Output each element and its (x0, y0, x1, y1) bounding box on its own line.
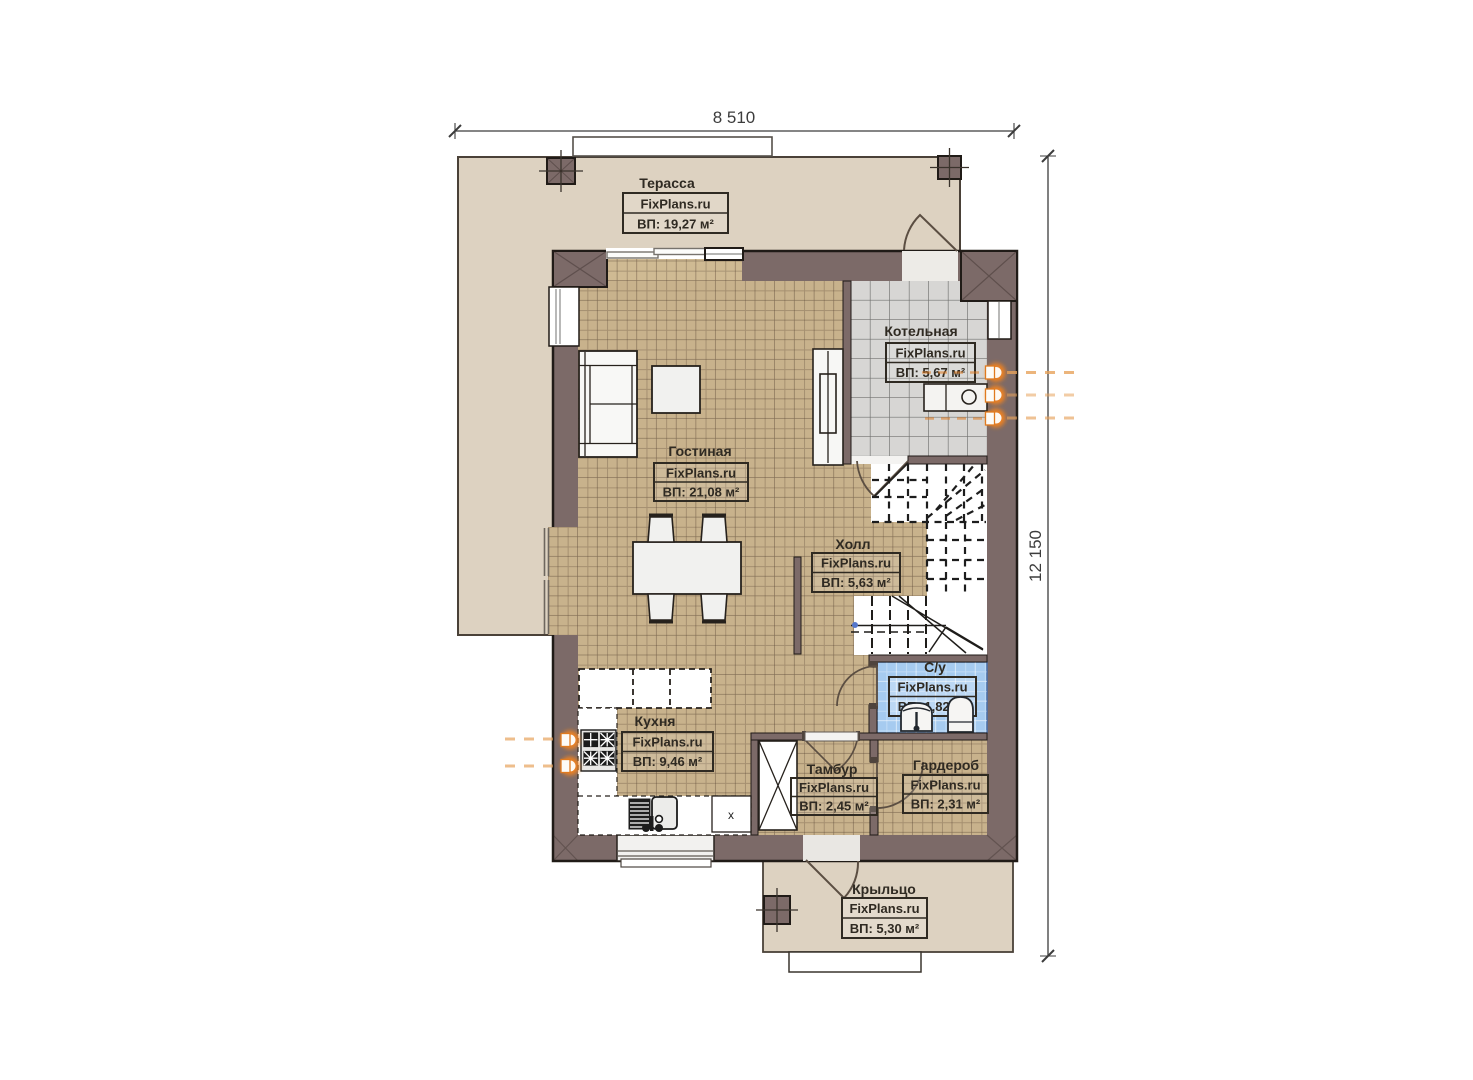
svg-text:Котельная: Котельная (884, 323, 957, 339)
svg-text:FixPlans.ru: FixPlans.ru (821, 556, 891, 571)
svg-text:ВП: 9,46 м²: ВП: 9,46 м² (633, 754, 703, 769)
svg-text:ВП: 19,27 м²: ВП: 19,27 м² (637, 217, 714, 232)
svg-text:Гостиная: Гостиная (668, 443, 731, 459)
svg-text:Гардероб: Гардероб (913, 757, 980, 773)
svg-text:ВП: 2,45 м²: ВП: 2,45 м² (799, 799, 869, 814)
svg-text:FixPlans.ru: FixPlans.ru (897, 680, 967, 695)
svg-text:FixPlans.ru: FixPlans.ru (799, 780, 869, 795)
svg-text:Крыльцо: Крыльцо (852, 881, 916, 897)
svg-text:ВП: 2,31 м²: ВП: 2,31 м² (911, 797, 981, 812)
svg-text:ВП: 5,30 м²: ВП: 5,30 м² (850, 921, 920, 936)
svg-text:FixPlans.ru: FixPlans.ru (666, 466, 736, 481)
svg-text:ВП: 21,08 м²: ВП: 21,08 м² (663, 485, 740, 500)
svg-text:FixPlans.ru: FixPlans.ru (849, 901, 919, 916)
svg-text:8 510: 8 510 (713, 108, 756, 127)
svg-text:С/у: С/у (924, 659, 946, 675)
svg-text:FixPlans.ru: FixPlans.ru (895, 346, 965, 361)
svg-text:Терасса: Терасса (639, 175, 695, 191)
svg-text:FixPlans.ru: FixPlans.ru (910, 778, 980, 793)
svg-text:FixPlans.ru: FixPlans.ru (632, 735, 702, 750)
svg-text:FixPlans.ru: FixPlans.ru (640, 197, 710, 212)
svg-text:x: x (728, 808, 734, 822)
svg-text:Холл: Холл (835, 536, 870, 552)
svg-text:Кухня: Кухня (635, 713, 676, 729)
svg-text:12 150: 12 150 (1026, 530, 1045, 582)
svg-text:ВП: 5,63 м²: ВП: 5,63 м² (821, 575, 891, 590)
svg-text:Тамбур: Тамбур (807, 761, 858, 777)
